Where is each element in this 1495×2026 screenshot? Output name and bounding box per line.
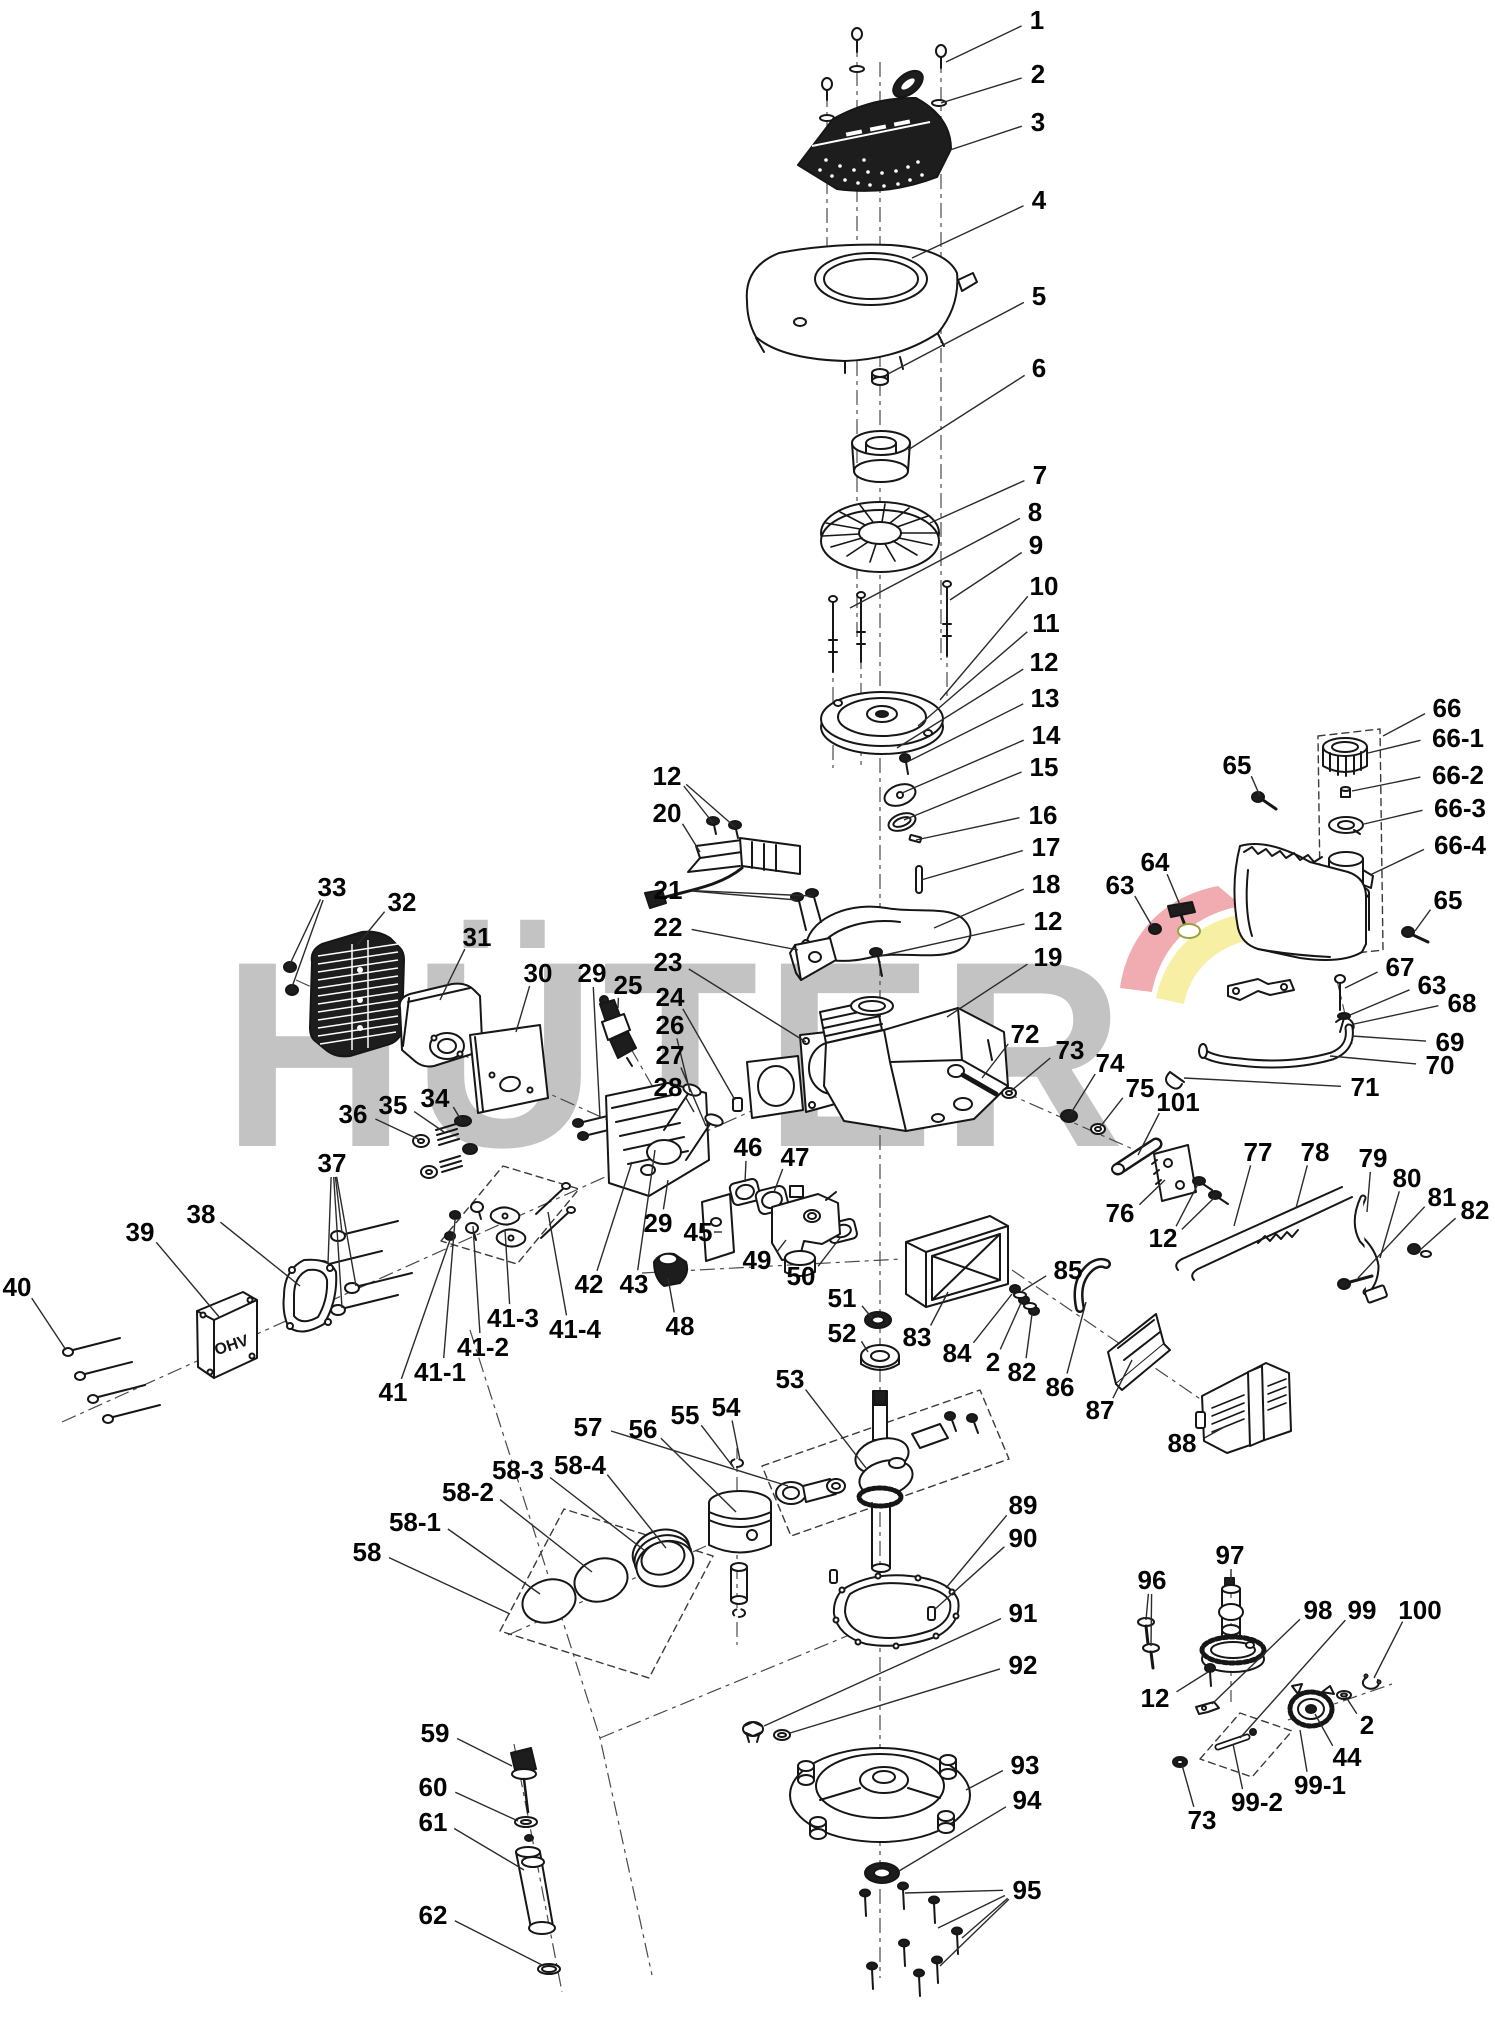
part-label-12: 12: [1034, 906, 1063, 936]
leader-line: [946, 1515, 1007, 1588]
leader-line: [916, 818, 1020, 840]
part-label-45: 45: [684, 1217, 713, 1247]
part-label-101: 101: [1156, 1087, 1199, 1117]
part-label-1: 1: [1030, 5, 1044, 35]
leader-line: [1380, 1191, 1399, 1258]
leader-line: [550, 1478, 644, 1551]
part-label-97: 97: [1216, 1540, 1245, 1570]
leader-line: [1370, 849, 1424, 875]
part-label-100: 100: [1398, 1595, 1441, 1625]
leader-line: [1234, 1165, 1251, 1226]
part-label-28: 28: [654, 1072, 683, 1102]
leader-line: [661, 1438, 736, 1512]
part-label-23: 23: [654, 947, 683, 977]
part-label-84: 84: [943, 1338, 972, 1368]
starter-cup: [852, 431, 910, 482]
leader-line: [1350, 990, 1410, 1015]
part-label-29: 29: [644, 1208, 673, 1238]
flywheel-fan: [821, 502, 939, 572]
air-filter-element: [1108, 1314, 1170, 1390]
part-label-74: 74: [1096, 1048, 1125, 1078]
intake-elbow: [654, 1254, 687, 1286]
oil-dipstick: [511, 1748, 560, 1974]
part-label-47: 47: [781, 1142, 810, 1172]
leader-line: [941, 78, 1022, 103]
part-label-26: 26: [656, 1010, 685, 1040]
leader-line: [908, 375, 1025, 450]
part-label-16: 16: [1029, 800, 1058, 830]
leader-line: [389, 1558, 510, 1614]
part-label-37: 37: [318, 1148, 347, 1178]
crankcase-gasket: [830, 1570, 959, 1649]
part-label-99-1: 99-1: [1294, 1770, 1346, 1800]
starter-cover: [798, 66, 951, 191]
leader-line: [500, 1500, 592, 1572]
part-label-58-3: 58-3: [492, 1455, 544, 1485]
part-label-88: 88: [1168, 1428, 1197, 1458]
part-label-89: 89: [1009, 1490, 1038, 1520]
leader-line: [1352, 777, 1420, 791]
part-label-50: 50: [787, 1261, 816, 1291]
leader-line: [1151, 1594, 1152, 1646]
leader-line: [1182, 1198, 1214, 1229]
part-label-2: 2: [1031, 59, 1045, 89]
leader-line: [473, 1226, 480, 1333]
valve-cover-gasket: [284, 1260, 337, 1332]
leader-line: [1346, 1697, 1357, 1714]
muffler: [400, 984, 482, 1067]
part-label-76: 76: [1106, 1198, 1135, 1228]
air-filter-cover: [1196, 1363, 1291, 1453]
part-label-5: 5: [1032, 281, 1046, 311]
part-label-66: 66: [1433, 693, 1462, 723]
part-label-34: 34: [421, 1083, 450, 1113]
breather-tube: [1079, 1263, 1107, 1308]
leader-line: [921, 851, 1023, 880]
diagram-canvas: HÜTER: [0, 0, 1495, 2026]
part-label-58-1: 58-1: [389, 1507, 441, 1537]
part-label-73: 73: [1056, 1035, 1085, 1065]
part-label-63: 63: [1418, 970, 1447, 1000]
part-label-31: 31: [463, 922, 492, 952]
part-label-91: 91: [1009, 1598, 1038, 1628]
governor-rods: [1176, 1187, 1352, 1280]
leader-line: [1330, 1056, 1416, 1064]
leader-line: [946, 26, 1022, 62]
part-label-66-4: 66-4: [1434, 830, 1487, 860]
leader-line: [912, 206, 1024, 258]
leader-line: [1296, 1165, 1307, 1208]
part-label-58-2: 58-2: [442, 1477, 494, 1507]
leader-line: [548, 1212, 567, 1315]
part-label-66-2: 66-2: [1432, 760, 1484, 790]
leader-line: [156, 1242, 220, 1318]
part-label-58: 58: [353, 1537, 382, 1567]
control-bracket: [1152, 1145, 1228, 1204]
leader-line: [32, 1298, 66, 1350]
part-label-65: 65: [1223, 750, 1252, 780]
part-label-38: 38: [187, 1199, 216, 1229]
part-label-7: 7: [1033, 460, 1047, 490]
connecting-rod: [776, 1479, 845, 1504]
part-label-73: 73: [1188, 1805, 1217, 1835]
muffler-gasket: [470, 1025, 548, 1113]
camshaft: [1202, 1578, 1264, 1672]
part-label-46: 46: [734, 1132, 763, 1162]
part-label-54: 54: [712, 1392, 741, 1422]
part-label-58-4: 58-4: [554, 1450, 607, 1480]
part-label-41-2: 41-2: [457, 1332, 509, 1362]
part-label-90: 90: [1009, 1523, 1038, 1553]
leader-line: [683, 824, 701, 852]
part-label-82: 82: [1008, 1357, 1037, 1387]
leader-line: [918, 632, 1027, 726]
part-label-96: 96: [1138, 1565, 1167, 1595]
leader-line: [607, 1475, 666, 1548]
part-label-62: 62: [419, 1900, 448, 1930]
part-label-25: 25: [614, 970, 643, 1000]
part-label-67: 67: [1386, 952, 1415, 982]
leader-line: [701, 1425, 734, 1468]
part-label-66-1: 66-1: [1432, 723, 1484, 753]
part-label-21: 21: [654, 875, 683, 905]
leader-line: [940, 1899, 1009, 1966]
part-label-87: 87: [1086, 1395, 1115, 1425]
oil-seal-lower: [865, 1863, 899, 1883]
part-label-42: 42: [575, 1269, 604, 1299]
part-label-29: 29: [578, 958, 607, 988]
leader-line: [950, 126, 1022, 150]
part-label-78: 78: [1301, 1137, 1330, 1167]
part-label-22: 22: [654, 912, 683, 942]
part-label-79: 79: [1359, 1143, 1388, 1173]
leader-line: [940, 596, 1028, 700]
valve-cover: OHV: [197, 1292, 257, 1378]
part-label-94: 94: [1013, 1785, 1042, 1815]
leader-line: [1182, 1765, 1194, 1807]
leader-line: [1135, 896, 1152, 926]
part-label-63: 63: [1106, 870, 1135, 900]
part-label-93: 93: [1011, 1750, 1040, 1780]
leader-line: [732, 1421, 740, 1461]
crankcase-cover: [790, 1748, 970, 1842]
leader-line: [1022, 1276, 1046, 1291]
part-label-12: 12: [653, 761, 682, 791]
leader-line: [966, 1771, 1003, 1791]
tappets: [1138, 1618, 1159, 1668]
part-label-8: 8: [1028, 497, 1042, 527]
leader-line: [904, 772, 1022, 820]
leader-line: [1383, 714, 1425, 736]
leader-line: [455, 1792, 518, 1821]
leader-line: [938, 1896, 1005, 1929]
part-label-41-3: 41-3: [487, 1303, 539, 1333]
part-label-14: 14: [1032, 720, 1061, 750]
part-label-77: 77: [1244, 1137, 1273, 1167]
leader-line: [1146, 1594, 1148, 1620]
magneto-parts: [882, 754, 922, 893]
part-label-41-4: 41-4: [549, 1314, 602, 1344]
part-label-10: 10: [1030, 571, 1059, 601]
part-label-99-2: 99-2: [1231, 1787, 1283, 1817]
leader-line: [1300, 1730, 1307, 1772]
leader-line: [1367, 1172, 1370, 1212]
leader-line: [934, 1547, 1004, 1610]
part-label-72: 72: [1011, 1019, 1040, 1049]
part-label-49: 49: [743, 1245, 772, 1275]
cover-bolts-95: [860, 1883, 962, 1997]
part-label-86: 86: [1046, 1372, 1075, 1402]
part-label-12: 12: [1149, 1223, 1178, 1253]
part-label-53: 53: [776, 1364, 805, 1394]
part-label-80: 80: [1393, 1163, 1422, 1193]
leader-line: [1368, 740, 1421, 753]
part-label-95: 95: [1013, 1875, 1042, 1905]
part-label-41: 41: [379, 1377, 408, 1407]
part-label-92: 92: [1009, 1650, 1038, 1680]
leader-line: [950, 553, 1022, 601]
leader-line: [905, 1890, 1003, 1893]
part-label-35: 35: [379, 1090, 408, 1120]
part-label-82: 82: [1461, 1195, 1490, 1225]
part-label-40: 40: [3, 1272, 32, 1302]
crankshaft: [762, 1390, 1009, 1572]
part-label-70: 70: [1426, 1050, 1455, 1080]
part-label-39: 39: [126, 1217, 155, 1247]
part-label-98: 98: [1304, 1595, 1333, 1625]
leader-line: [1364, 810, 1423, 824]
part-label-75: 75: [1126, 1073, 1155, 1103]
leader-line: [457, 1739, 512, 1767]
part-label-48: 48: [666, 1311, 695, 1341]
part-label-33: 33: [318, 872, 347, 902]
part-label-60: 60: [419, 1772, 448, 1802]
leader-line: [1420, 1218, 1456, 1250]
part-label-20: 20: [653, 798, 682, 828]
piston: [709, 1459, 771, 1617]
part-label-27: 27: [656, 1040, 685, 1070]
part-label-2: 2: [1360, 1710, 1374, 1740]
leader-line: [1352, 1036, 1426, 1041]
leader-line: [1345, 972, 1378, 988]
part-label-4: 4: [1032, 185, 1047, 215]
part-label-15: 15: [1030, 752, 1059, 782]
part-label-44: 44: [1333, 1742, 1362, 1772]
part-label-68: 68: [1448, 988, 1477, 1018]
part-label-12: 12: [1141, 1683, 1170, 1713]
part-label-11: 11: [1032, 608, 1060, 638]
leader-line: [930, 481, 1024, 523]
part-label-52: 52: [828, 1318, 857, 1348]
part-label-32: 32: [388, 887, 417, 917]
cover-bolts-40: [63, 1338, 160, 1423]
air-filter-housing: [906, 1216, 1039, 1315]
leader-line: [1415, 910, 1431, 931]
part-label-2: 2: [986, 1347, 1000, 1377]
leader-line: [1026, 1314, 1032, 1358]
diagram-svg: HÜTER: [0, 0, 1495, 2026]
leader-line: [454, 1829, 524, 1871]
leader-line: [745, 1161, 746, 1182]
part-label-17: 17: [1032, 832, 1061, 862]
piston-rings: [500, 1509, 713, 1678]
part-label-59: 59: [421, 1718, 450, 1748]
cylinder-studs: [829, 581, 951, 672]
part-label-55: 55: [671, 1400, 700, 1430]
part-label-51: 51: [828, 1283, 857, 1313]
part-label-12: 12: [1030, 647, 1059, 677]
part-label-6: 6: [1032, 353, 1046, 383]
flywheel: [821, 692, 943, 754]
leader-line: [1233, 1744, 1243, 1789]
leader-line: [1167, 874, 1180, 905]
part-label-99: 99: [1348, 1595, 1377, 1625]
leader-line: [962, 1898, 1008, 1938]
part-label-18: 18: [1032, 869, 1061, 899]
part-label-57: 57: [574, 1412, 603, 1442]
part-label-64: 64: [1141, 847, 1170, 877]
leader-line: [1067, 1302, 1086, 1374]
fan-housing: [747, 245, 977, 373]
leader-line: [220, 1222, 300, 1286]
part-label-66-3: 66-3: [1434, 793, 1486, 823]
part-label-85: 85: [1054, 1255, 1083, 1285]
part-label-56: 56: [629, 1414, 658, 1444]
part-label-83: 83: [903, 1322, 932, 1352]
part-label-43: 43: [620, 1269, 649, 1299]
leader-line: [1177, 1672, 1209, 1692]
part-label-30: 30: [524, 958, 553, 988]
leader-line: [806, 1390, 866, 1468]
leader-line: [1000, 1303, 1021, 1349]
leader-line: [1184, 1078, 1341, 1086]
part-label-65: 65: [1434, 885, 1463, 915]
part-label-9: 9: [1029, 530, 1043, 560]
part-label-71: 71: [1351, 1072, 1380, 1102]
part-label-81: 81: [1428, 1182, 1457, 1212]
leader-line: [448, 1529, 540, 1594]
leader-line: [790, 1669, 1000, 1733]
part-label-36: 36: [339, 1099, 368, 1129]
flange-nut: [872, 369, 888, 385]
leader-line: [1374, 1622, 1403, 1678]
part-label-19: 19: [1034, 942, 1063, 972]
part-label-61: 61: [419, 1807, 448, 1837]
part-label-24: 24: [656, 982, 685, 1012]
part-label-3: 3: [1031, 107, 1045, 137]
part-label-13: 13: [1031, 683, 1060, 713]
